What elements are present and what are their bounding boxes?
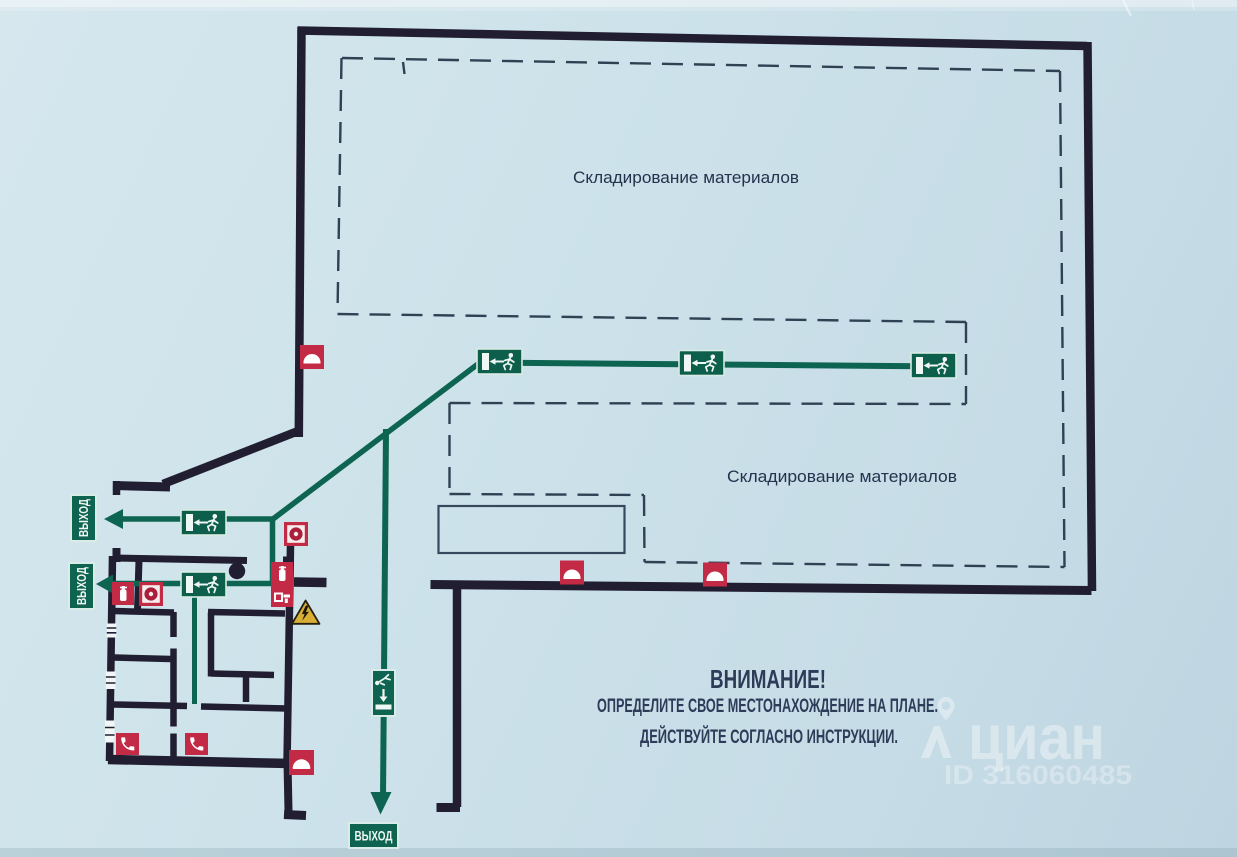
svg-text:ВЫХОД: ВЫХОД [75,567,89,605]
svg-text:ВЫХОД: ВЫХОД [355,829,393,844]
svg-text:ДЕЙСТВУЙТЕ СОГЛАСНО ИНСТРУКЦИИ: ДЕЙСТВУЙТЕ СОГЛАСНО ИНСТРУКЦИИ. [640,724,898,748]
svg-text:ВЫХОД: ВЫХОД [77,499,91,537]
svg-text:ОПРЕДЕЛИТЕ СВОЕ МЕСТОНАХОЖДЕНИ: ОПРЕДЕЛИТЕ СВОЕ МЕСТОНАХОЖДЕНИЕ НА ПЛАНЕ… [597,695,938,717]
svg-text:ID 316060485: ID 316060485 [944,760,1132,790]
svg-text:Складирование материалов: Складирование материалов [727,468,957,486]
svg-text:Складирование материалов: Складирование материалов [573,169,799,187]
svg-text:ВНИМАНИЕ!: ВНИМАНИЕ! [710,664,826,694]
